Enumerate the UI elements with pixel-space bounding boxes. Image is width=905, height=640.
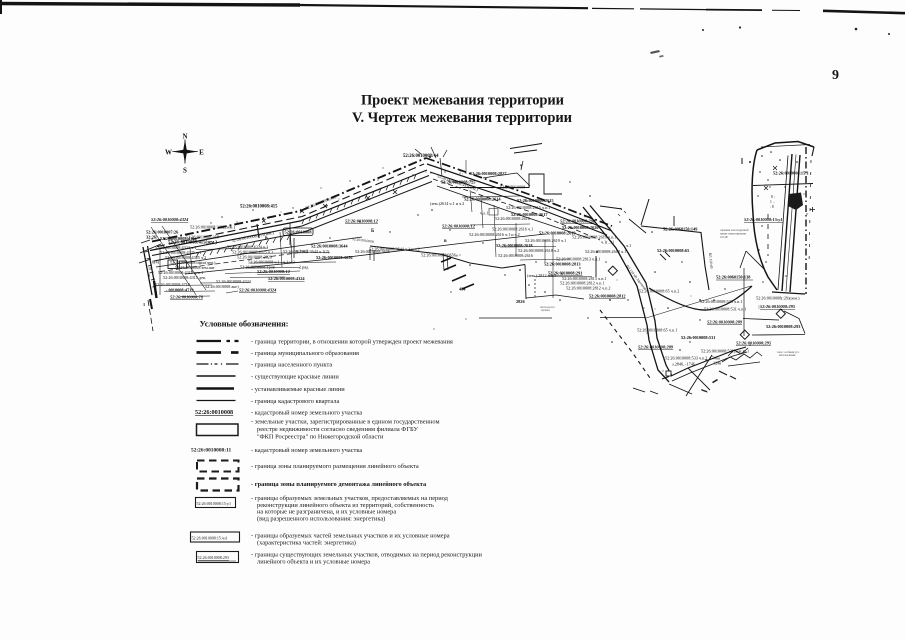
svg-text:9: 9 xyxy=(148,273,150,278)
svg-text:52:26:0060150:149: 52:26:0060150:149 xyxy=(663,227,697,232)
svg-text:2 ряд: 2 ряд xyxy=(299,265,309,270)
svg-text:52:26:0010008:2614: 52:26:0010008:2614 xyxy=(464,197,501,202)
svg-text:- граница кадастрового квартал: - граница кадастрового квартала xyxy=(251,398,339,405)
svg-text:52:26:0010008:15:чз1: 52:26:0010008:15:чз1 xyxy=(192,536,228,541)
svg-text:V. Чертеж межевания территории: V. Чертеж межевания территории xyxy=(352,110,572,126)
svg-text:52:26:0010008:3644 ч.1 и ч.2: 52:26:0010008:3644 ч.1 и ч.2 xyxy=(369,247,420,252)
svg-text:- кадастровый номер земельного: - кадастровый номер земельного участка xyxy=(251,410,362,417)
svg-text:- земельные участки, зарегистр: - земельные участки, зарегистрированные … xyxy=(251,419,440,426)
svg-text:ч.л.1: ч.л.1 xyxy=(480,211,488,216)
svg-text:52:26:0010008:2813: 52:26:0010008:2813 xyxy=(544,262,581,267)
svg-text:52:26:0010008:4324: 52:26:0010008:4324 xyxy=(239,288,277,293)
svg-text:ч.1: ч.1 xyxy=(626,243,631,248)
svg-text:52:26:0010008:15:у1: 52:26:0010008:15:у1 xyxy=(197,501,231,506)
svg-text:52:26:0010008:3656а: 52:26:0010008:3656а xyxy=(421,253,458,258)
svg-text:52:26:0060150:138: 52:26:0060150:138 xyxy=(716,275,750,280)
svg-text:8(4): 8(4) xyxy=(152,260,160,265)
svg-text:52:26:0010008:11: 52:26:0010008:11 xyxy=(191,448,231,454)
svg-text:8 ;: 8 ; xyxy=(771,195,775,199)
svg-text:- граница населенного пункта: - граница населенного пункта xyxy=(251,362,332,369)
svg-text:52:26:0010008:12: 52:26:0010008:12 xyxy=(345,219,379,224)
svg-text:W: W xyxy=(165,149,172,157)
svg-text:- граница зоны планируемого: - граница зоны планируемого размещения л… xyxy=(251,463,419,470)
svg-text:52:26:0010008:258: 52:26:0010008:258 xyxy=(186,235,219,240)
svg-text:52:26:0010008:533 ч.п.1: 52:26:0010008:533 ч.п.1 xyxy=(700,299,742,304)
svg-text:52:26:0010008(:29)(зем.): 52:26:0010008(:29)(зем.) xyxy=(756,296,800,301)
svg-text:1 ..: 1 .. xyxy=(770,200,775,204)
svg-text:52:26:0010008:295: 52:26:0010008:295 xyxy=(760,304,796,309)
svg-text:(характеристика частей: энерге: (характеристика частей: энергетика) xyxy=(257,539,356,546)
svg-text:52:26:0010008:2618 ч.1: 52:26:0010008:2618 ч.1 xyxy=(585,249,626,254)
svg-text:52:26:0010008:3656: 52:26:0010008:3656 xyxy=(316,255,353,260)
svg-text:E: E xyxy=(199,149,204,157)
svg-text:- граница зоны планируемого де: - граница зоны планируемого демонтажа ли… xyxy=(251,481,427,488)
svg-text:52:26:0010008:2432(зем.): 52:26:0010008:2432(зем.) xyxy=(190,225,236,230)
svg-text:использования: использования xyxy=(779,354,796,357)
svg-text:52:26:0010008:531: 52:26:0010008:531 xyxy=(681,335,715,340)
svg-text:52:26:0010008:65: 52:26:0010008:65 xyxy=(657,248,689,253)
svg-text:в: в xyxy=(444,239,447,244)
svg-text:52:26:0010008:2812 ч.п.2: 52:26:0010008:2812 ч.п.2 xyxy=(566,286,610,291)
svg-text:52:26:0010008:289: 52:26:0010008:289 xyxy=(707,320,743,325)
svg-text:52:26:0010008:4324: 52:26:0010008:4324 xyxy=(151,217,189,222)
svg-text:52:26:0010008:2616: 52:26:0010008:2616 xyxy=(495,216,530,221)
svg-text:"ФКП Росреестра" по Нижегородс: "ФКП Росреестра" по Нижегородской област… xyxy=(257,434,384,441)
svg-text:52:26:0010008:15:у1: 52:26:0010008:15:у1 xyxy=(744,217,783,222)
svg-text:52:26:0010008:289: 52:26:0010008:289 xyxy=(638,345,674,350)
svg-text:52:26:0010008:2619: 52:26:0010008:2619 xyxy=(539,231,576,236)
svg-text:1: 1 xyxy=(520,165,522,170)
svg-text:52:26:0010008:2616 ч.1 и ч.2: 52:26:0010008:2616 ч.1 и ч.2 xyxy=(469,232,520,237)
svg-text:ч.1 м.1: ч.1 м.1 xyxy=(283,260,295,265)
svg-text:линейного объекта и их условны: линейного объекта и их условные номера xyxy=(257,558,370,565)
svg-text:9: 9 xyxy=(832,68,839,83)
svg-text:52:26:0010008: 52:26:0010008 xyxy=(500,185,525,190)
svg-text:52:26:0010008 анг): 52:26:0010008 анг) xyxy=(205,284,239,289)
svg-text:52:26:0010008:3644: 52:26:0010008:3644 xyxy=(311,244,348,249)
svg-text:- граница территории, в отноше: - граница территории, в отношении которо… xyxy=(251,339,453,346)
svg-text:52:26:0010008:2827: 52:26:0010008:2827 xyxy=(470,171,507,176)
svg-text:- 0010008:4719: - 0010008:4719 xyxy=(166,288,194,293)
svg-text:ч.1: ч.1 xyxy=(290,244,295,249)
svg-text:N: N xyxy=(182,133,187,141)
svg-text:(вид разрешенного использовани: (вид разрешенного использования: энергет… xyxy=(257,515,385,522)
svg-text:124в: 124в xyxy=(713,361,721,366)
svg-text:- устанавливаемые красные лини: - устанавливаемые красные линии xyxy=(251,386,345,393)
svg-text:52:26:0010008:290: 52:26:0010008:290 xyxy=(560,219,596,224)
svg-text:52:26:0010008:4324: 52:26:0010008:4324 xyxy=(268,276,305,281)
svg-text:- граница муниципального образ: - граница муниципального образования xyxy=(251,350,359,357)
svg-text:52:26:0010008:531 ч.п.1: 52:26:0010008:531 ч.п.1 xyxy=(704,307,746,312)
svg-text:52:26:0010008:12: 52:26:0010008:12 xyxy=(442,224,476,229)
svg-text:52:26:0010008:3644 ч.1(2): 52:26:0010008:3644 ч.1(2) xyxy=(283,249,330,254)
svg-text:52:26:0010008:295: 52:26:0010008:295 xyxy=(736,341,772,346)
svg-text:в: в xyxy=(265,236,268,241)
svg-text:52:26:0010008:531(зем.)ч.1: 52:26:0010008:531(зем.)ч.1 xyxy=(701,349,749,354)
svg-text:правая: правая xyxy=(541,308,550,312)
svg-text:реестре недвижимости согласно: реестре недвижимости согласно сведениям … xyxy=(257,426,418,433)
svg-text:(зем.):2812 ч.п.1: (зем.):2812 ч.п.1 xyxy=(527,273,556,278)
svg-text:Проект межевания территории: Проект межевания территории xyxy=(361,93,564,109)
svg-text:52:26:0010008: 52:26:0010008 xyxy=(195,409,233,416)
svg-text:110 кВ: 110 кВ xyxy=(720,236,728,239)
svg-text:32:26:: 32:26: xyxy=(146,235,158,240)
svg-text:(зем.)2614 ч.1 и ч.2: (зем.)2614 ч.1 и ч.2 xyxy=(430,201,464,206)
svg-text:: 8: : 8 xyxy=(770,205,774,209)
svg-text:52:26:0010008:2812: 52:26:0010008:2812 xyxy=(589,294,626,299)
svg-text:52:26:0010008:2615: 52:26:0010008:2615 xyxy=(517,198,554,203)
svg-text:- кадастровый номер земельного: - кадастровый номер земельного участка xyxy=(251,447,362,454)
svg-text:52:26:0010008:2616: 52:26:0010008:2616 xyxy=(498,253,533,258)
svg-text:52:26:0010008:4719: 52:26:0010008:4719 xyxy=(155,282,190,287)
svg-text:52:26:0010008:293: 52:26:0010008:293 xyxy=(766,324,800,329)
svg-text:52:26:0010008:ч4: 52:26:0010008:ч4 xyxy=(403,154,439,159)
svg-text:52:26:0010008:70: 52:26:0010008:70 xyxy=(170,295,204,300)
svg-text:Условные обозначения:: Условные обозначения: xyxy=(200,319,289,329)
svg-text:484: 484 xyxy=(459,287,466,292)
svg-text:52:26:0010008:293: 52:26:0010008:293 xyxy=(198,555,229,560)
svg-text:52:26:0010008:4315 деп.: 52:26:0010008:4315 деп. xyxy=(163,275,206,280)
svg-text:52:26:0010008:15:1: 52:26:0010008:15:1 xyxy=(773,171,809,176)
svg-text:52:26:0010008: 52:26:0010008 xyxy=(285,230,312,235)
svg-text:52:26:0010008:65 ч.п.1: 52:26:0010008:65 ч.п.1 xyxy=(637,328,677,333)
svg-text:52:26:0010008:2615 ч.п.1: 52:26:0010008:2615 ч.п.1 xyxy=(506,205,550,210)
svg-text:52:26:0010008:2616 ч.1: 52:26:0010008:2616 ч.1 xyxy=(492,227,533,232)
svg-text:- существующие красные линии: - существующие красные линии xyxy=(251,374,339,381)
svg-text:52:26:0010008:2620: 52:26:0010008:2620 xyxy=(562,225,599,230)
svg-text:2826: 2826 xyxy=(516,299,525,304)
svg-text:S: S xyxy=(183,167,187,175)
svg-text:ч.1(...)1: ч.1(...)1 xyxy=(601,240,614,245)
svg-text:52:26:0010008:415: 52:26:0010008:415 xyxy=(240,205,278,210)
svg-text:1: 1 xyxy=(143,302,145,307)
svg-text:52:26:0010008:12: 52:26:0010008:12 xyxy=(257,269,291,274)
svg-text:10: 10 xyxy=(148,266,152,271)
